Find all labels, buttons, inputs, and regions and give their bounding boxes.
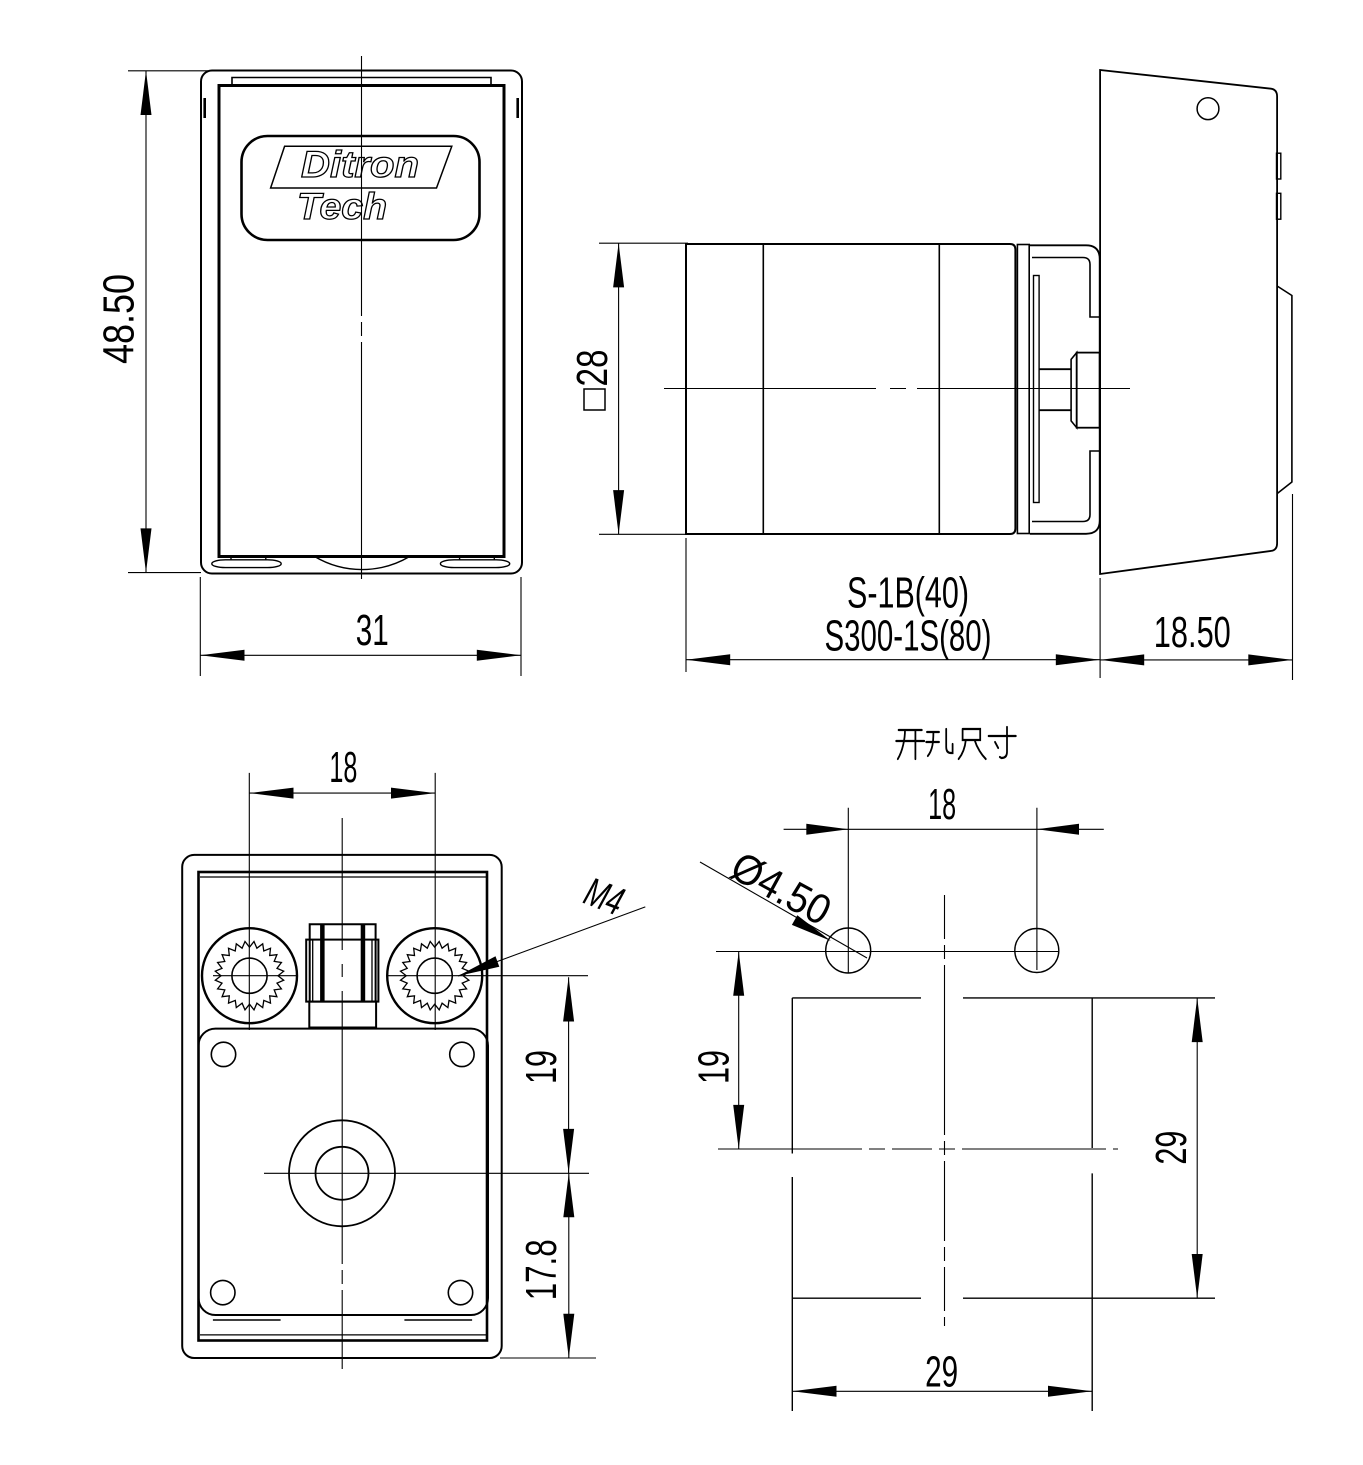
svg-text:31: 31 — [356, 606, 389, 655]
svg-text:Tech: Tech — [297, 186, 387, 227]
svg-text:18: 18 — [928, 780, 956, 829]
svg-text:19: 19 — [690, 1050, 739, 1084]
svg-text:18.50: 18.50 — [1154, 608, 1231, 657]
svg-text:28: 28 — [568, 350, 617, 387]
svg-text:17.8: 17.8 — [517, 1239, 566, 1300]
svg-text:48.50: 48.50 — [95, 274, 144, 364]
svg-text:19: 19 — [517, 1050, 566, 1084]
svg-text:29: 29 — [925, 1348, 958, 1397]
svg-text:S300-1S(80): S300-1S(80) — [825, 611, 992, 660]
svg-text:29: 29 — [1147, 1131, 1196, 1165]
svg-text:S-1B(40): S-1B(40) — [847, 568, 969, 617]
svg-text:Ditron: Ditron — [301, 144, 419, 185]
svg-text:18: 18 — [329, 743, 357, 792]
